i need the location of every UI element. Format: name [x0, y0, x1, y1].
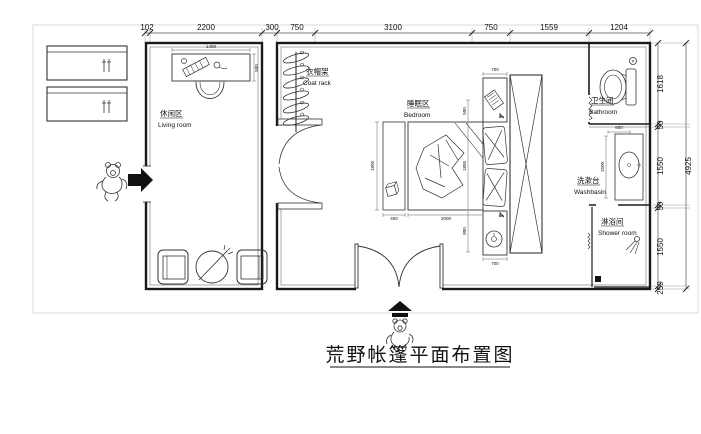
floor-plan-canvas: 102 2200 300 750 3100 750 1559 1204 1618…: [0, 0, 701, 434]
cup-icon: [182, 59, 187, 64]
dim-bench-width: 450: [390, 216, 398, 221]
clock-icon: [486, 231, 502, 247]
dim-desk-depth: 500: [254, 64, 259, 72]
dim-side-upper: 500: [462, 107, 467, 115]
floor-drain-icon: [595, 276, 601, 282]
dim-top-6: 1559: [540, 23, 558, 32]
nightstand-top: [483, 78, 507, 122]
lounger-adjuster-icon: [102, 100, 111, 113]
label-washbasin-zh: 洗漱台: [577, 175, 600, 185]
label-bedroom-en: Bedroom: [404, 112, 430, 119]
bed: [408, 122, 508, 210]
room-labels: 休闲区 Living room 衣帽架 Coat rack 睡眠区 Bedroo…: [158, 66, 637, 237]
label-washbasin-en: Washbasin: [574, 189, 606, 196]
dim-bed-width: 2000: [441, 216, 452, 221]
label-bathroom-zh: 卫生间: [591, 95, 614, 105]
dim-top-7: 1204: [610, 23, 628, 32]
wardrobe: [510, 75, 542, 253]
plan-title: 荒野帐篷平面布置图: [325, 344, 514, 366]
bench-item-icon: [385, 182, 400, 197]
lounger-top: [47, 46, 127, 80]
dim-right-0: 1618: [656, 75, 665, 93]
bedroom-west-double-door: [278, 119, 322, 209]
label-shower-en: Shower room: [598, 230, 637, 237]
dim-basin-counter: 1500: [600, 161, 605, 172]
dim-side-bed: 1800: [462, 160, 467, 171]
dim-desk-width: 1400: [206, 44, 217, 49]
bedroom-west-door-opening: [272, 126, 282, 203]
ceiling-light-icon: [630, 58, 637, 65]
washbasin-counter: [615, 134, 643, 200]
dim-right-5: 250: [656, 281, 665, 295]
dim-top-2: 300: [265, 23, 279, 32]
bed-bench: [383, 122, 405, 210]
drawing-frame: [33, 25, 698, 313]
pillow: [482, 126, 507, 207]
dim-top-1: 2200: [197, 23, 215, 32]
floor-plan-drawing: 102 2200 300 750 3100 750 1559 1204 1618…: [0, 0, 701, 434]
desk: [172, 54, 250, 81]
shower-head-icon: [626, 237, 640, 255]
dim-nightstand-top: 700: [491, 67, 499, 72]
round-table: [196, 245, 233, 283]
person-figure-icon: [97, 163, 127, 202]
dim-right-1: 50: [656, 120, 665, 129]
dim-right-total: 4925: [684, 157, 693, 175]
washbasin-dims: [604, 130, 630, 198]
quilt: [416, 135, 464, 198]
label-coatrack-zh: 衣帽架: [306, 66, 329, 76]
lounger-bottom: [47, 87, 127, 121]
dim-top-3: 750: [290, 23, 304, 32]
desk-chair: [193, 81, 226, 99]
sheet-fold-lines: [455, 123, 483, 158]
label-bathroom-en: Bathroom: [589, 109, 617, 116]
label-bedroom-zh: 睡眠区: [407, 99, 430, 108]
dim-top-4: 3100: [384, 23, 402, 32]
dim-side-lower: 800: [462, 227, 467, 235]
nightstand-bottom: [483, 211, 507, 255]
nightstand-item-icon: [484, 90, 503, 110]
dim-top-5: 750: [484, 23, 498, 32]
dim-right-4: 1550: [656, 238, 665, 256]
lamp-icon: [499, 212, 504, 217]
label-shower-zh: 淋浴间: [601, 216, 624, 226]
label-coatrack-en: Coat rack: [303, 80, 332, 87]
dim-right-3: 50: [656, 201, 665, 210]
south-double-door: [355, 244, 443, 288]
label-living-zh: 休闲区: [160, 108, 183, 118]
drawing-title: 荒野帐篷平面布置图: [325, 344, 514, 367]
dim-nightstand-bottom: 700: [491, 261, 499, 266]
faucet-icon: [637, 162, 641, 168]
lounger-adjuster-icon: [102, 59, 111, 72]
dim-bed-length: 1800: [370, 160, 375, 171]
dim-right-2: 1550: [656, 157, 665, 175]
shower-door-annotation: [588, 233, 590, 249]
sink-icon: [619, 152, 639, 178]
dim-top-0: 102: [140, 23, 154, 32]
north-arrow-icon: [388, 301, 412, 311]
shower-fixtures: [595, 237, 640, 283]
armchair-left: [158, 250, 188, 284]
dim-bathroom-door: 600: [615, 125, 623, 130]
lamp-icon: [499, 113, 504, 118]
label-living-en: Living room: [158, 122, 192, 129]
